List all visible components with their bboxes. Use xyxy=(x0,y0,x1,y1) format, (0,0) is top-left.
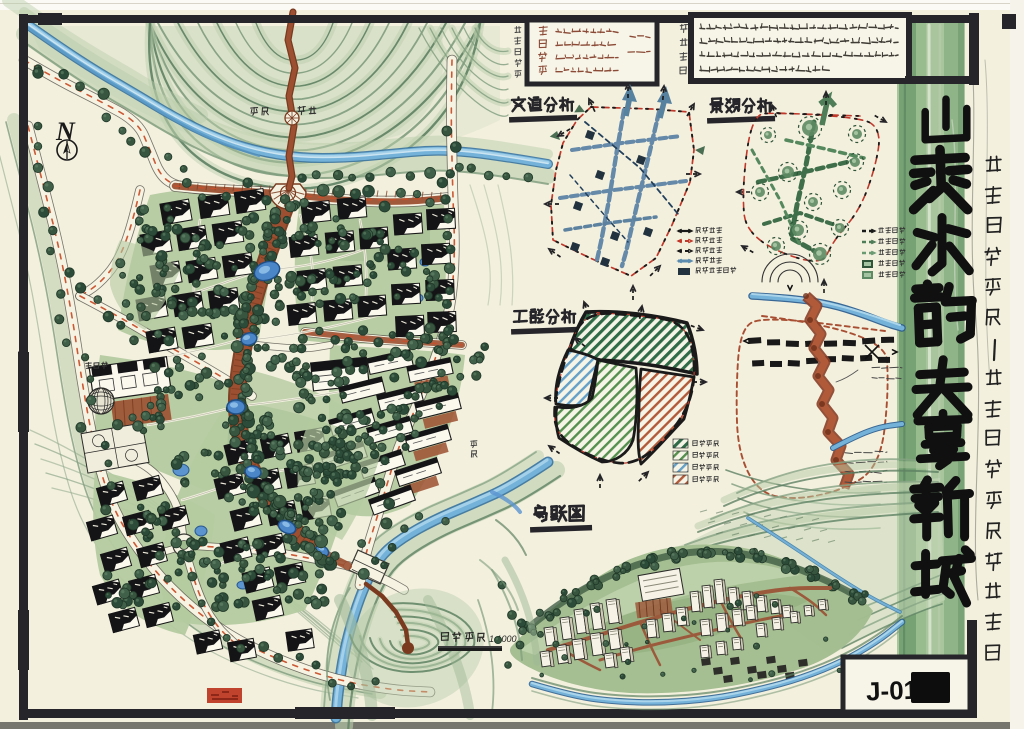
svg-text:1:1000: 1:1000 xyxy=(489,634,517,644)
svg-text:J-01: J-01 xyxy=(866,675,919,707)
